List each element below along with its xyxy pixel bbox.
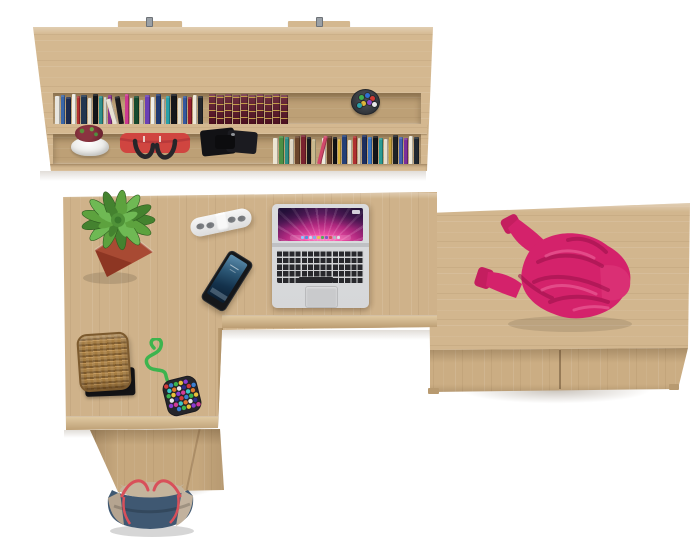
book-spine — [93, 94, 98, 124]
book-spine — [273, 94, 280, 124]
book-spine — [379, 138, 383, 164]
drawer-foot-left — [428, 388, 439, 394]
red-handbag — [119, 125, 195, 167]
book-spine — [273, 138, 278, 164]
book-spine — [333, 137, 337, 164]
plant-foliage — [81, 190, 155, 251]
smartphone — [199, 247, 253, 313]
socket-hole — [237, 215, 246, 223]
pen — [359, 95, 364, 100]
book-spine — [301, 135, 306, 164]
dock-icon — [317, 236, 320, 239]
book-spine — [368, 137, 372, 164]
book-spine — [55, 96, 60, 124]
book-spine — [399, 137, 403, 164]
spacebar-key — [299, 277, 333, 283]
book-spine — [414, 137, 419, 164]
socket-hole — [227, 216, 236, 224]
menu-bar-pill — [352, 210, 360, 214]
shelf-mount-pin-right — [316, 17, 323, 27]
wicker-basket — [76, 331, 132, 392]
book-spine — [358, 138, 361, 164]
book-spine — [130, 98, 133, 124]
laptop — [272, 204, 369, 308]
book-spine — [338, 139, 341, 164]
desk-front-shadow — [221, 330, 437, 340]
book-spine — [307, 137, 311, 164]
book-spine — [327, 136, 332, 164]
pen-cup — [351, 89, 380, 115]
red-handbag-stitch — [143, 136, 145, 142]
book-spine — [178, 98, 182, 124]
book-spine — [404, 138, 408, 164]
black-camera-case — [201, 127, 267, 157]
book-spine — [249, 95, 256, 124]
book-spine — [233, 95, 240, 124]
book-spine — [99, 96, 103, 124]
book-spine — [279, 136, 284, 164]
book-spine — [348, 140, 352, 164]
book-spine — [156, 94, 161, 124]
socket-hole — [196, 223, 205, 231]
dock-icon — [333, 236, 336, 239]
book-spine — [285, 137, 289, 164]
toy-cord — [146, 339, 168, 382]
book-spine — [312, 139, 316, 164]
book-spine — [373, 136, 378, 164]
book-spine — [81, 95, 87, 124]
book-spine — [389, 137, 392, 164]
book-spine — [384, 139, 388, 164]
power-strip-body — [189, 207, 254, 238]
pen-cup-pens — [352, 90, 379, 114]
drawer-seam — [559, 350, 561, 389]
book-spine — [198, 96, 203, 124]
smartphone-screen — [207, 254, 248, 304]
book-spine — [393, 135, 398, 164]
shelf-mount-pin-left — [146, 17, 153, 27]
smartphone-body — [200, 249, 254, 313]
dock-icon — [301, 236, 304, 239]
dock-icon — [337, 236, 340, 239]
trackpad — [305, 286, 338, 308]
screen-dock-band — [210, 287, 230, 302]
pen — [357, 103, 362, 108]
book-spine — [257, 94, 264, 124]
dock-icon — [321, 236, 324, 239]
shelf-top-highlight — [33, 27, 433, 35]
case-button — [231, 133, 235, 136]
book-spine — [353, 136, 357, 164]
desk-leg-shadow — [64, 430, 94, 438]
book-spine — [217, 95, 224, 124]
toy-pouch — [161, 374, 203, 417]
book-spine — [342, 135, 347, 164]
book-spine — [183, 96, 187, 124]
plant-center — [115, 217, 122, 224]
book-spine — [362, 135, 367, 164]
top-down-desk-scene — [0, 0, 700, 537]
sweater-shadow — [508, 316, 632, 332]
book-spine — [88, 98, 92, 124]
dock-icon — [305, 236, 308, 239]
book-spine — [125, 94, 129, 124]
book-spine — [140, 100, 144, 124]
laptop-hinge — [272, 243, 369, 247]
potted-plant — [62, 178, 180, 288]
book-spine — [188, 97, 192, 124]
dock-icon — [313, 236, 316, 239]
book-spine — [409, 136, 413, 164]
shelf-bottom-edge — [49, 164, 427, 171]
power-strip — [189, 203, 253, 243]
desk-leg-side-edge — [218, 328, 223, 428]
desk-front-edge — [222, 315, 437, 328]
book-spine — [265, 95, 272, 124]
red-handbag-stitch — [159, 136, 161, 142]
pen — [372, 102, 377, 107]
wall-shelf — [33, 27, 433, 171]
book-spine — [66, 97, 71, 124]
book-spine — [145, 95, 150, 124]
book-spine — [193, 95, 197, 124]
drawer-foot-right — [669, 384, 679, 390]
book-spine — [77, 96, 80, 124]
book-spine — [72, 94, 76, 124]
case-pocket — [215, 135, 235, 149]
small-plant-pot — [69, 125, 111, 157]
dock-icon — [309, 236, 312, 239]
white-pot-foliage — [75, 125, 103, 142]
book-spine — [162, 99, 165, 124]
book-spine — [290, 139, 294, 164]
book-spine — [209, 94, 216, 124]
book-spine — [225, 94, 232, 124]
tote-bag — [100, 468, 206, 537]
screen-text-line — [229, 269, 235, 274]
book-spine — [281, 95, 288, 124]
dock-icon — [325, 236, 328, 239]
book-spine — [166, 96, 170, 124]
pink-sweater — [450, 206, 650, 338]
sweater-sleeve-left — [486, 272, 522, 298]
book-spine — [295, 136, 300, 164]
dock-icon — [329, 236, 332, 239]
laptop-display — [278, 208, 363, 241]
book-spine — [151, 97, 155, 124]
beaded-keychain-toy — [140, 338, 215, 420]
power-strip-clip — [214, 212, 230, 233]
book-spine — [241, 94, 248, 124]
book-spine — [61, 95, 65, 124]
socket-hole — [206, 222, 215, 230]
dock — [290, 235, 351, 240]
book-spine — [134, 96, 139, 124]
book-spine — [171, 94, 177, 124]
